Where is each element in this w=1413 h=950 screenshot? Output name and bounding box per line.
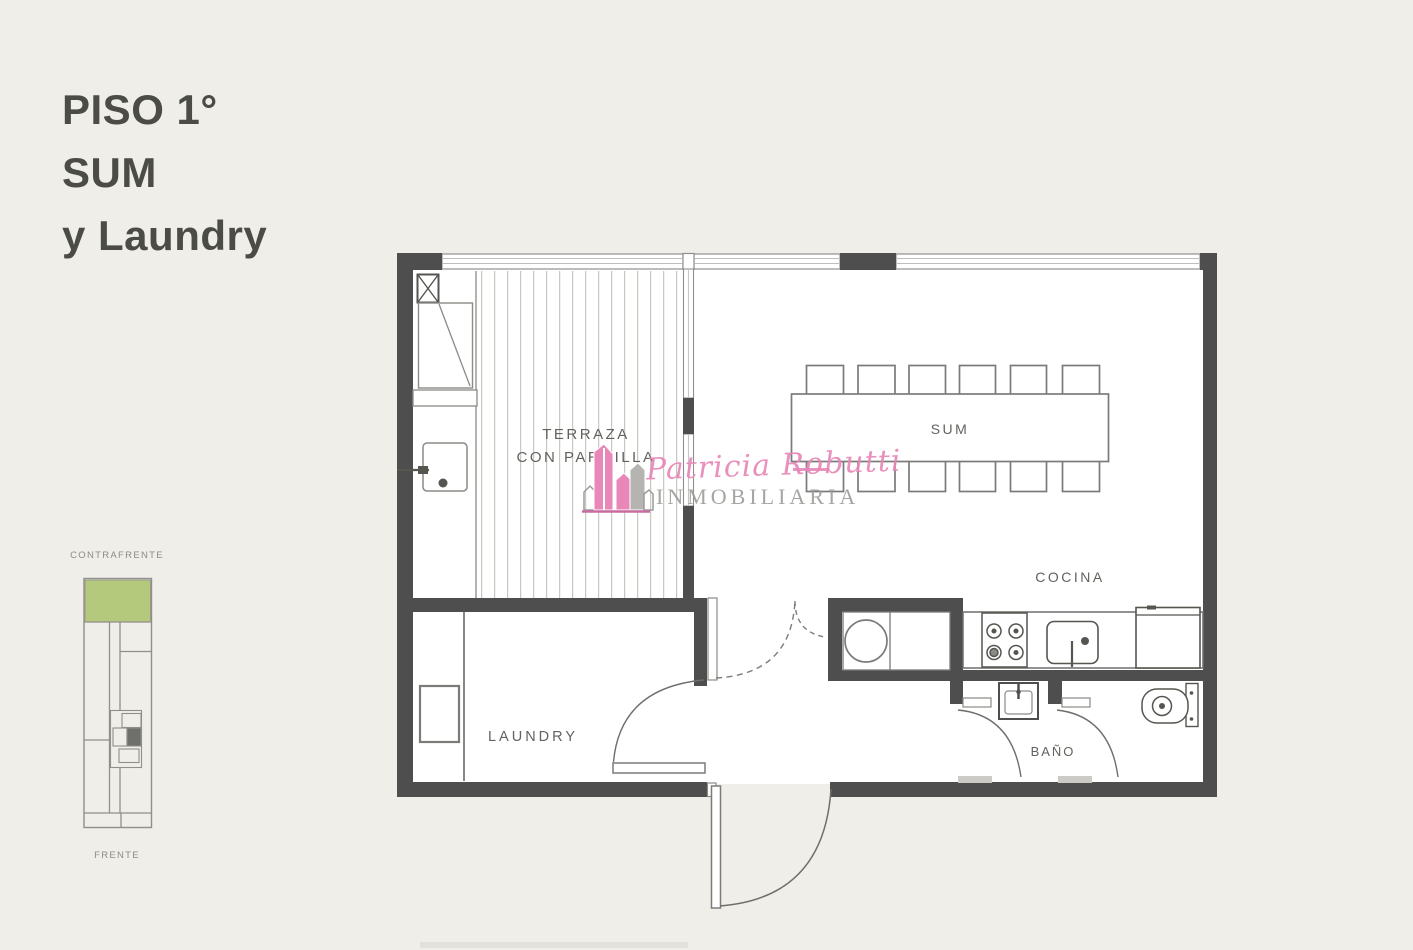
wc-threshold bbox=[1058, 776, 1092, 783]
entry-door-leaf bbox=[712, 786, 721, 908]
building-core bbox=[111, 711, 142, 768]
toilet-icon bbox=[1142, 684, 1198, 727]
key-plan bbox=[84, 579, 152, 828]
floor-plan-page: PISO 1° SUM y Laundry bbox=[0, 0, 1413, 950]
laundry-cabinet bbox=[420, 686, 459, 742]
wc-door-leaf bbox=[1062, 698, 1090, 707]
bano-label: BAÑO bbox=[1031, 744, 1076, 759]
contrafrente-label: CONTRAFRENTE bbox=[70, 550, 164, 561]
laundry-door-leaf bbox=[613, 763, 705, 773]
laundry-label: LAUNDRY bbox=[488, 729, 578, 745]
watermark-flourish-line bbox=[793, 468, 829, 471]
window-wall-top bbox=[442, 254, 1200, 270]
cocina-label: COCINA bbox=[1035, 569, 1104, 585]
fridge-icon bbox=[1136, 606, 1200, 669]
bath-threshold bbox=[958, 776, 992, 783]
chimney-box bbox=[419, 303, 473, 388]
bath-door-leaf bbox=[963, 698, 991, 707]
elevator-cell bbox=[127, 728, 141, 746]
laundry-door-jamb bbox=[708, 598, 717, 680]
buildings-logo-icon bbox=[580, 440, 654, 514]
sum-label: SUM bbox=[931, 421, 970, 437]
frente-label: FRENTE bbox=[94, 850, 140, 861]
stove-icon bbox=[982, 613, 1027, 667]
entry-door-arc bbox=[720, 789, 831, 906]
highlighted-unit bbox=[85, 580, 151, 622]
bottom-faint-strip bbox=[420, 942, 688, 948]
counter-shelf bbox=[413, 390, 477, 406]
kitchen-counter bbox=[963, 606, 1203, 669]
bath-sink-icon bbox=[999, 683, 1038, 719]
watermark-subtitle: INMOBILIARIA bbox=[656, 484, 859, 510]
grill-knob bbox=[439, 479, 448, 488]
sink-icon bbox=[1047, 622, 1098, 668]
window-mullion bbox=[683, 254, 694, 270]
